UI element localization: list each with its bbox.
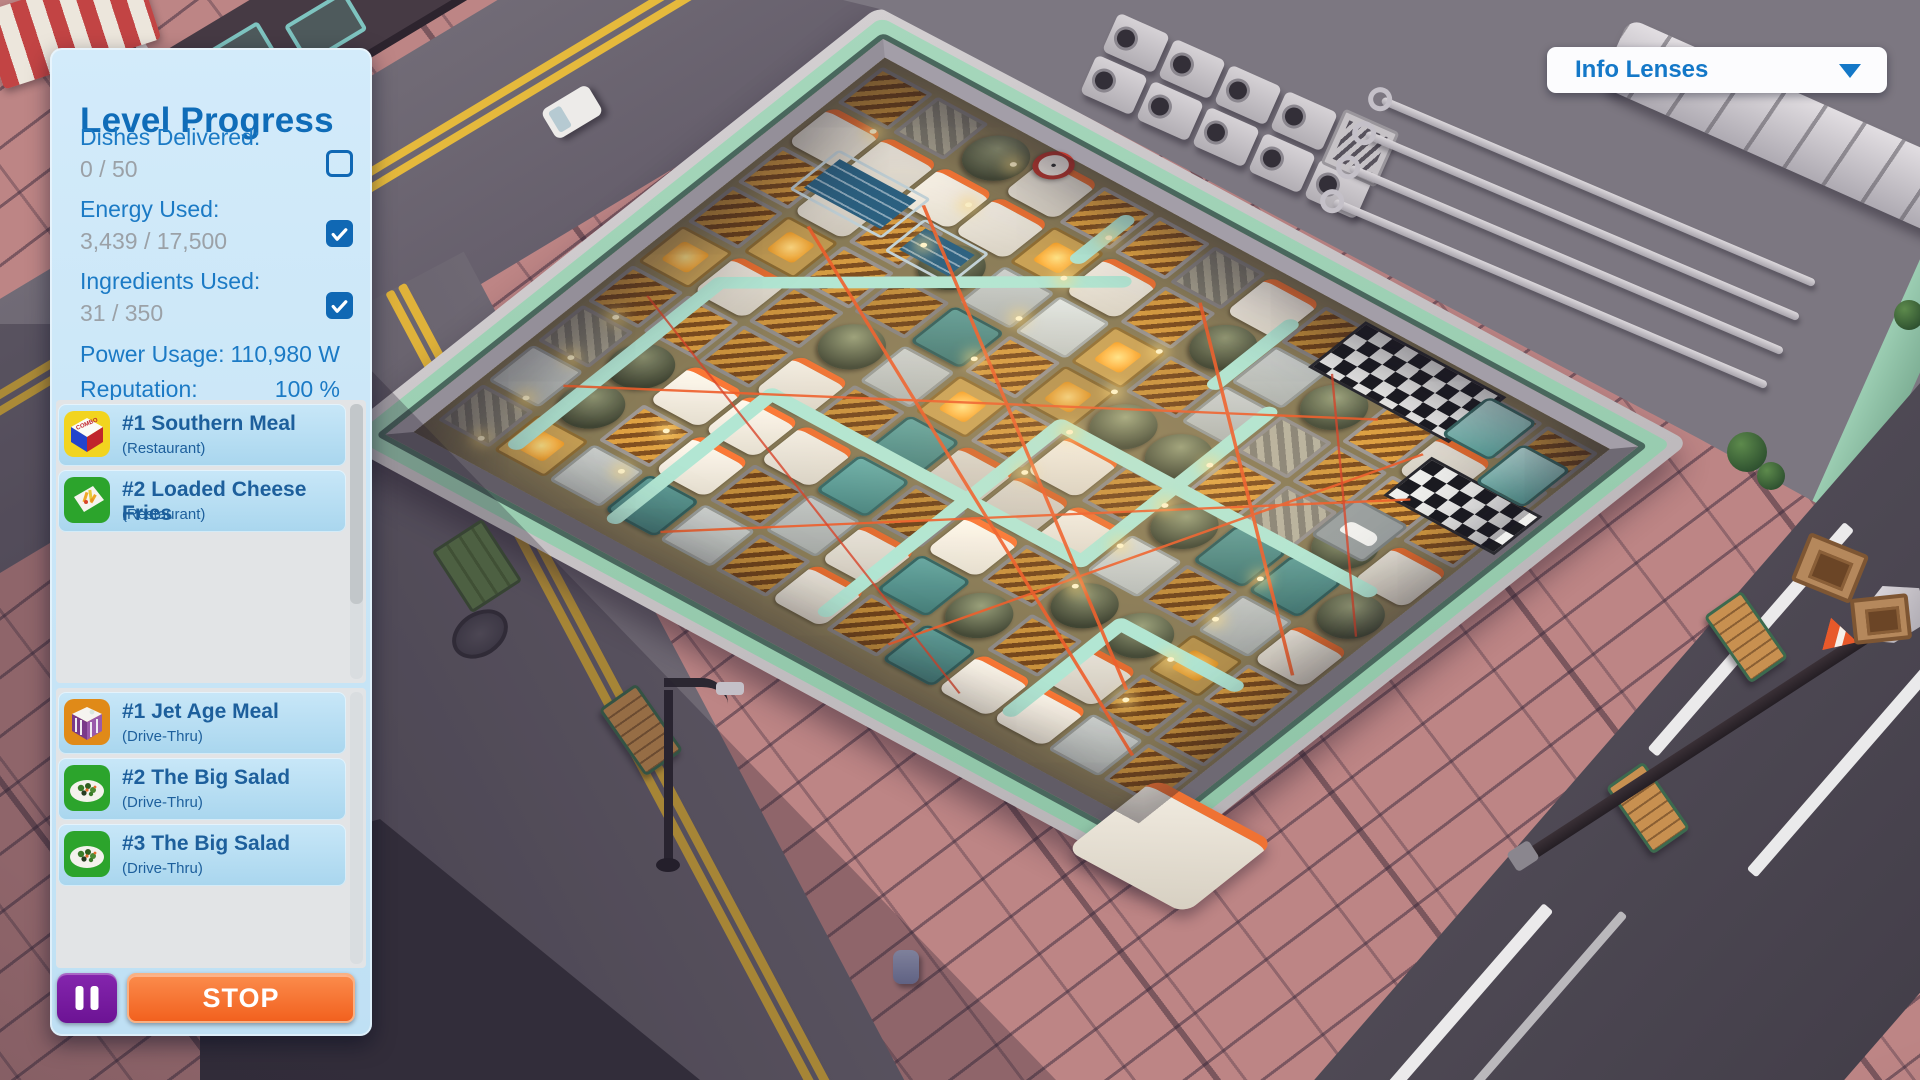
lane-line bbox=[1747, 643, 1920, 878]
order-source: (Restaurant) bbox=[122, 440, 205, 457]
stat-checkbox-0[interactable] bbox=[326, 150, 353, 177]
order-row[interactable]: COMBO #1 Southern Meal (Restaurant) bbox=[58, 404, 346, 466]
check-icon bbox=[330, 297, 349, 316]
shrub bbox=[1757, 462, 1785, 490]
drive-thru-order-list: #1 Jet Age Meal (Drive-Thru) #2 The Big … bbox=[56, 688, 366, 968]
pause-icon bbox=[76, 986, 99, 1010]
salad-plate-icon bbox=[64, 765, 110, 811]
jet-age-box-icon bbox=[64, 699, 110, 745]
order-row[interactable]: #2 The Big Salad (Drive-Thru) bbox=[58, 758, 346, 820]
stat-label: Ingredients Used: bbox=[80, 268, 260, 295]
order-row[interactable]: #3 The Big Salad (Drive-Thru) bbox=[58, 824, 346, 886]
stat-label: Dishes Delivered: bbox=[80, 124, 260, 151]
metric-label: Power Usage: bbox=[80, 341, 224, 368]
cheese-fries-icon bbox=[64, 477, 110, 523]
game-viewport: Level Progress Dishes Delivered: 0 / 50 … bbox=[0, 0, 1920, 1080]
stat-value: 3,439 / 17,500 bbox=[80, 228, 227, 255]
order-source: (Drive-Thru) bbox=[122, 794, 203, 811]
stat-checkbox-2[interactable] bbox=[326, 292, 353, 319]
order-row[interactable]: #2 Loaded Cheese Fries (Restaurant) bbox=[58, 470, 346, 532]
order-name: #1 Jet Age Meal bbox=[122, 700, 279, 724]
roof-pipe bbox=[1364, 130, 1800, 321]
check-icon bbox=[330, 225, 349, 244]
stop-button[interactable]: STOP bbox=[127, 973, 355, 1023]
pause-button[interactable] bbox=[57, 973, 117, 1023]
info-lenses-label: Info Lenses bbox=[1575, 56, 1708, 84]
metric-value: 110,980 W bbox=[230, 341, 340, 368]
shrub bbox=[1894, 300, 1920, 330]
chevron-down-icon bbox=[1839, 64, 1861, 78]
stat-label: Energy Used: bbox=[80, 196, 219, 223]
order-source: (Drive-Thru) bbox=[122, 728, 203, 745]
stat-checkbox-1[interactable] bbox=[326, 220, 353, 247]
scrollbar-track[interactable] bbox=[350, 692, 363, 964]
metric-value: 100 % bbox=[275, 376, 340, 403]
combo-meal-box-icon: COMBO bbox=[64, 411, 110, 457]
order-source: (Restaurant) bbox=[122, 506, 205, 523]
info-lenses-dropdown[interactable]: Info Lenses bbox=[1547, 47, 1887, 93]
order-name: #2 The Big Salad bbox=[122, 766, 290, 790]
restaurant-order-list: COMBO #1 Southern Meal (Restaurant) #2 L… bbox=[56, 400, 366, 683]
salad-plate-icon bbox=[64, 831, 110, 877]
scrollbar-thumb[interactable] bbox=[350, 404, 363, 604]
metric-label: Reputation: bbox=[80, 376, 198, 403]
order-source: (Drive-Thru) bbox=[122, 860, 203, 877]
order-name: #1 Southern Meal bbox=[122, 412, 296, 436]
stat-value: 31 / 350 bbox=[80, 300, 163, 327]
cardboard-box bbox=[1850, 593, 1912, 645]
street-lamp-head bbox=[716, 682, 744, 695]
level-progress-panel: Level Progress Dishes Delivered: 0 / 50 … bbox=[50, 48, 372, 1036]
order-name: #3 The Big Salad bbox=[122, 832, 290, 856]
stat-value: 0 / 50 bbox=[80, 156, 138, 183]
order-row[interactable]: #1 Jet Age Meal (Drive-Thru) bbox=[58, 692, 346, 754]
